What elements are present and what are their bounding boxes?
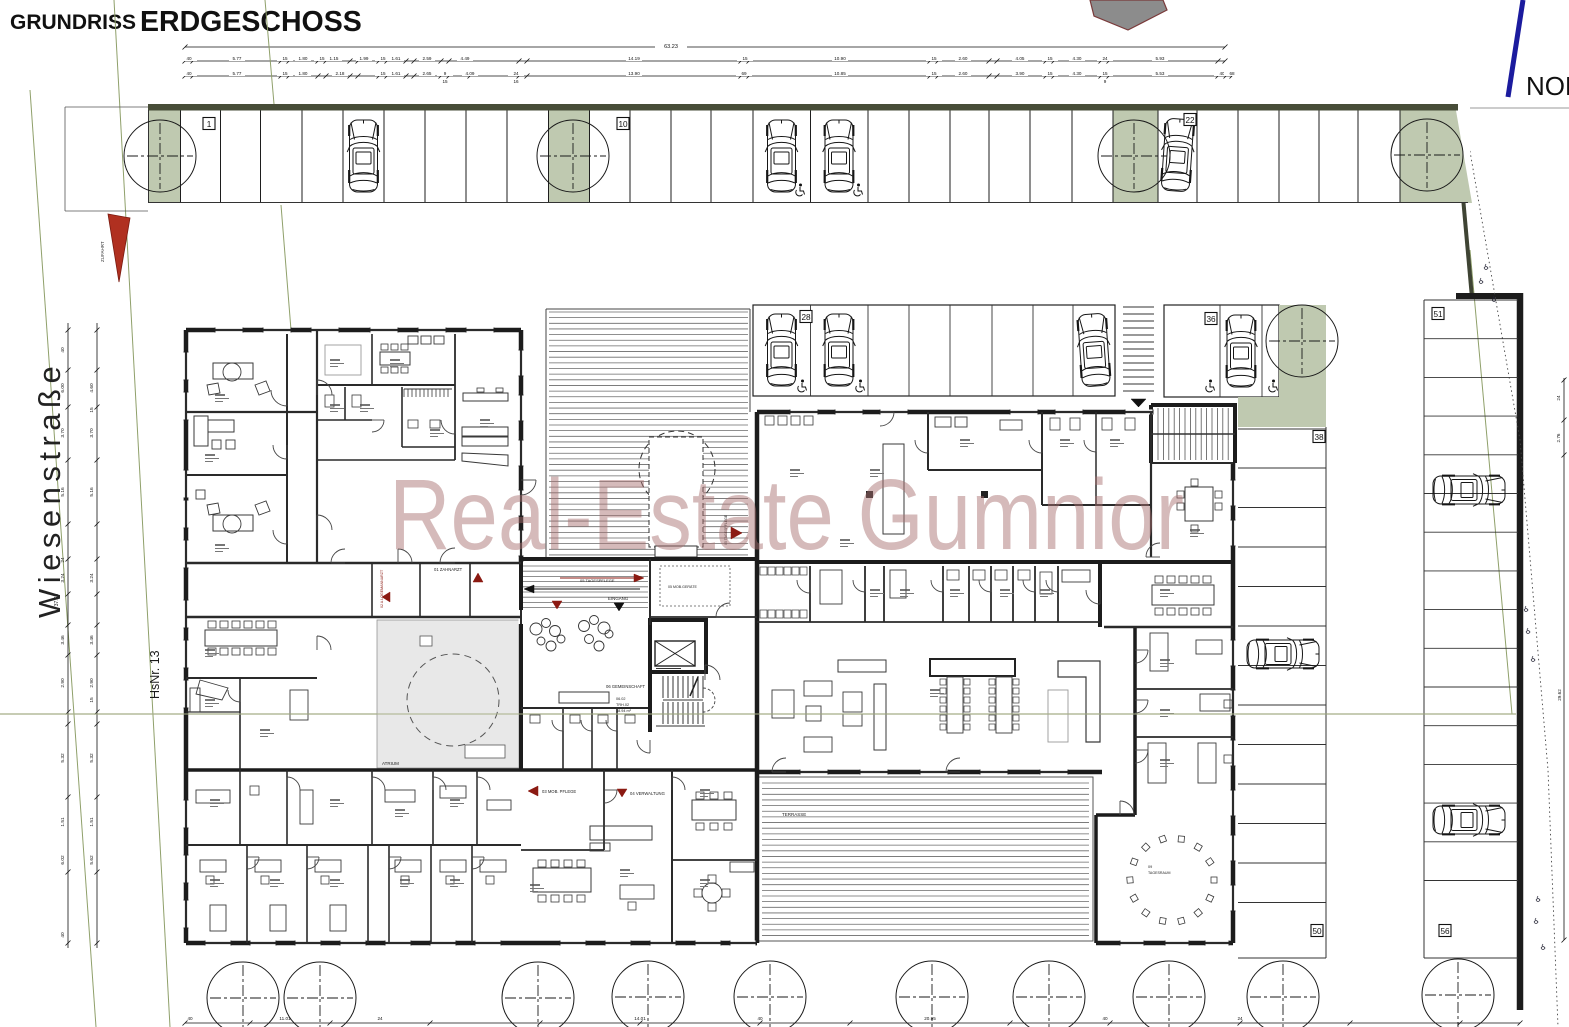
svg-text:5.62: 5.62 <box>89 855 95 865</box>
svg-text:04 VERWALTUNG: 04 VERWALTUNG <box>630 791 665 796</box>
svg-text:2.60: 2.60 <box>959 56 968 61</box>
svg-text:Real-Estate Gumnior: Real-Estate Gumnior <box>389 459 1184 571</box>
svg-text:5.16: 5.16 <box>89 487 95 497</box>
svg-text:40: 40 <box>60 347 66 353</box>
svg-text:29.62: 29.62 <box>1557 689 1562 701</box>
svg-text:3.70: 3.70 <box>89 428 95 438</box>
svg-text:2.76: 2.76 <box>1556 433 1561 442</box>
svg-text:TERRASSE: TERRASSE <box>782 812 806 817</box>
svg-text:28: 28 <box>801 313 811 322</box>
svg-text:HsNr. 13: HsNr. 13 <box>148 650 162 699</box>
svg-text:2.65: 2.65 <box>423 71 432 76</box>
svg-text:10.90: 10.90 <box>834 56 846 61</box>
svg-text:38.94 m²: 38.94 m² <box>616 709 632 713</box>
svg-text:36: 36 <box>1206 315 1216 324</box>
svg-text:50: 50 <box>1312 927 1322 936</box>
svg-text:3.46: 3.46 <box>60 635 66 645</box>
svg-text:3.24: 3.24 <box>89 573 95 583</box>
svg-text:EINGANG: EINGANG <box>608 596 629 601</box>
svg-text:ZUFAHRT: ZUFAHRT <box>100 241 105 262</box>
svg-text:40: 40 <box>186 71 192 76</box>
svg-text:15: 15 <box>282 71 288 76</box>
svg-text:6.02: 6.02 <box>60 855 66 865</box>
svg-text:68: 68 <box>1229 71 1235 76</box>
svg-text:15: 15 <box>1047 56 1053 61</box>
svg-text:56: 56 <box>1440 927 1450 936</box>
svg-text:2.60: 2.60 <box>959 71 968 76</box>
svg-text:1.80: 1.80 <box>299 71 308 76</box>
svg-text:06.02: 06.02 <box>616 697 626 701</box>
svg-text:1.61: 1.61 <box>392 56 401 61</box>
svg-text:10.85: 10.85 <box>834 71 846 76</box>
svg-text:24: 24 <box>513 71 519 76</box>
svg-text:24: 24 <box>1556 395 1561 401</box>
svg-text:09: 09 <box>1148 865 1152 869</box>
svg-text:15: 15 <box>742 56 748 61</box>
svg-text:4.30: 4.30 <box>1073 71 1082 76</box>
svg-text:3.46: 3.46 <box>89 635 95 645</box>
svg-text:4.09: 4.09 <box>466 71 475 76</box>
svg-text:14.01: 14.01 <box>634 1016 646 1021</box>
svg-text:05 MOB.GERÄTE: 05 MOB.GERÄTE <box>668 585 698 589</box>
svg-text:TAGESRAUM: TAGESRAUM <box>1148 871 1171 875</box>
svg-text:3.90: 3.90 <box>1016 71 1025 76</box>
svg-text:38: 38 <box>1314 433 1324 442</box>
svg-text:15: 15 <box>1102 71 1108 76</box>
svg-text:Wiesenstraße: Wiesenstraße <box>32 361 67 618</box>
svg-text:15: 15 <box>380 71 386 76</box>
svg-text:ERDGESCHOSS: ERDGESCHOSS <box>140 6 362 38</box>
svg-text:40: 40 <box>186 56 192 61</box>
svg-text:15: 15 <box>380 56 386 61</box>
svg-text:GRUNDRISS: GRUNDRISS <box>10 11 136 34</box>
svg-text:1.51: 1.51 <box>60 817 66 827</box>
svg-text:14.19: 14.19 <box>628 56 640 61</box>
svg-text:5.32: 5.32 <box>89 753 95 763</box>
svg-text:15: 15 <box>1047 71 1053 76</box>
svg-text:1.80: 1.80 <box>299 56 308 61</box>
svg-text:15: 15 <box>282 56 288 61</box>
svg-text:1.15: 1.15 <box>330 56 339 61</box>
svg-text:9: 9 <box>1104 79 1107 84</box>
svg-text:4.60: 4.60 <box>89 383 95 393</box>
svg-text:51: 51 <box>1433 310 1443 319</box>
svg-text:40: 40 <box>187 1016 193 1021</box>
svg-text:13.90: 13.90 <box>628 71 640 76</box>
svg-text:69: 69 <box>741 71 747 76</box>
svg-text:2.90: 2.90 <box>89 678 95 688</box>
svg-text:5.32: 5.32 <box>60 753 66 763</box>
svg-text:24: 24 <box>1237 1016 1243 1021</box>
svg-text:24: 24 <box>1102 56 1108 61</box>
svg-text:15: 15 <box>319 56 325 61</box>
svg-text:2.18: 2.18 <box>336 71 345 76</box>
svg-text:15: 15 <box>931 56 937 61</box>
svg-text:40: 40 <box>60 932 66 938</box>
svg-text:03 MOB. PFLEGE: 03 MOB. PFLEGE <box>542 789 576 794</box>
svg-text:05 TAGESPFLEGE: 05 TAGESPFLEGE <box>580 578 615 583</box>
svg-text:1.51: 1.51 <box>89 817 95 827</box>
svg-text:2.90: 2.90 <box>60 678 66 688</box>
svg-text:TRH.02: TRH.02 <box>616 703 629 707</box>
svg-text:5.77: 5.77 <box>233 71 242 76</box>
svg-text:1.61: 1.61 <box>392 71 401 76</box>
svg-text:15: 15 <box>89 697 95 703</box>
svg-text:15: 15 <box>931 71 937 76</box>
svg-text:11.01: 11.01 <box>279 1016 291 1021</box>
svg-text:02 A.LOGEMANNARZT: 02 A.LOGEMANNARZT <box>380 569 384 608</box>
svg-text:06 GEMEINSCHAFT: 06 GEMEINSCHAFT <box>606 684 646 689</box>
svg-text:NOR: NOR <box>1526 71 1569 101</box>
svg-text:22: 22 <box>1185 116 1195 125</box>
svg-text:1.99: 1.99 <box>360 56 369 61</box>
svg-text:24: 24 <box>377 1016 383 1021</box>
svg-text:40: 40 <box>1102 1016 1108 1021</box>
svg-text:63.23: 63.23 <box>664 44 678 50</box>
svg-text:15: 15 <box>442 79 448 84</box>
svg-text:4.49: 4.49 <box>461 56 470 61</box>
svg-text:15: 15 <box>89 407 95 413</box>
svg-text:2.59: 2.59 <box>423 56 432 61</box>
svg-text:5.77: 5.77 <box>233 56 242 61</box>
svg-text:ATRIUM: ATRIUM <box>382 761 399 766</box>
svg-text:4.30: 4.30 <box>1073 56 1082 61</box>
svg-text:40: 40 <box>757 1016 763 1021</box>
svg-text:4.05: 4.05 <box>1016 56 1025 61</box>
svg-text:20.95: 20.95 <box>924 1016 936 1021</box>
svg-text:5.53: 5.53 <box>1156 71 1165 76</box>
svg-text:5.93: 5.93 <box>1156 56 1165 61</box>
svg-text:10: 10 <box>618 120 628 129</box>
svg-text:9: 9 <box>444 71 447 76</box>
svg-text:16: 16 <box>513 79 519 84</box>
svg-text:1: 1 <box>207 120 212 129</box>
